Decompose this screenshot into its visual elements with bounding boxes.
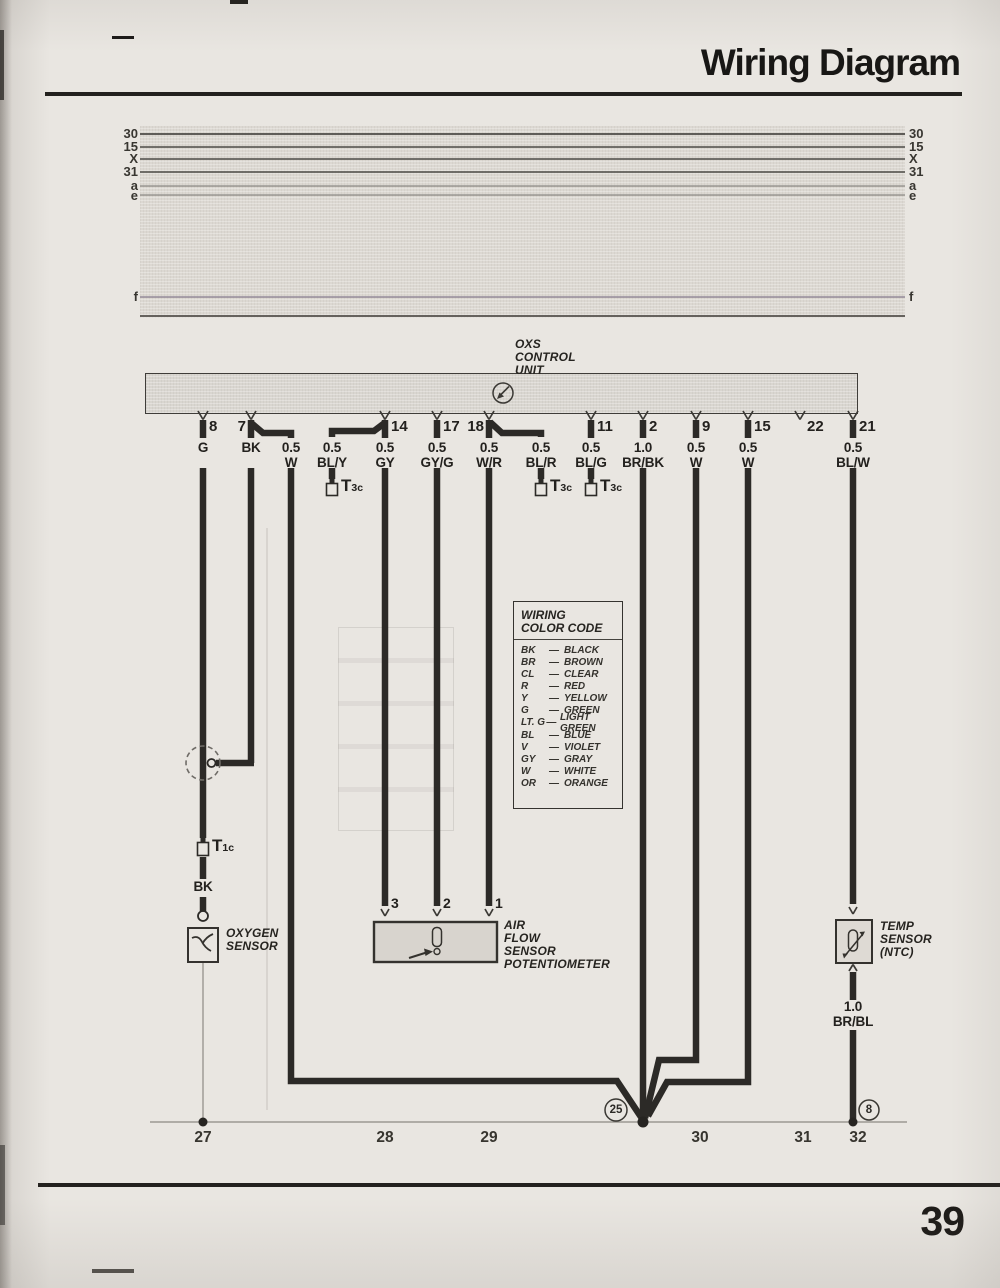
wiring-diagram-canvas xyxy=(0,0,1000,1288)
track-29: 29 xyxy=(474,1129,504,1147)
color-code-row: LT. G—LIGHT GREEN xyxy=(514,717,622,729)
terminal-number-18: 18 xyxy=(464,418,484,435)
wire-label-bl-w: 0.5BL/W xyxy=(821,440,885,470)
air-flow-sensor-symbol xyxy=(374,922,497,962)
temp-sensor-symbol xyxy=(836,920,872,963)
terminal-number-8: 8 xyxy=(209,418,217,435)
header-rule xyxy=(45,92,962,96)
terminal-number-15: 15 xyxy=(754,418,771,435)
terminal-number-11: 11 xyxy=(597,418,613,435)
wire-w-mid xyxy=(645,420,696,1118)
control-unit-label: OXS CONTROL UNIT xyxy=(515,338,576,377)
wiring-color-code-box: WIRING COLOR CODE BK—BLACK BR—BROWN CL—C… xyxy=(513,601,623,809)
color-code-row: V—VIOLET xyxy=(514,741,622,753)
track-30: 30 xyxy=(685,1129,715,1147)
color-code-row: GY—GRAY xyxy=(514,753,622,765)
connector-t3c-2: T3c xyxy=(550,476,572,496)
track-32: 32 xyxy=(843,1129,873,1147)
color-code-row: BK—BLACK xyxy=(514,644,622,656)
wire-label-br-bl: 1.0 BR/BL xyxy=(821,999,885,1029)
bus-label-f-left: f xyxy=(112,289,138,304)
color-code-title: WIRING COLOR CODE xyxy=(514,602,622,634)
wire-label-w3: 0.5W xyxy=(716,440,780,470)
color-code-row: CL—CLEAR xyxy=(514,668,622,680)
color-code-separator xyxy=(514,639,622,640)
bus-label-31-right: 31 xyxy=(909,164,935,179)
terminal-number-2: 2 xyxy=(649,418,657,435)
terminal-number-9: 9 xyxy=(702,418,710,435)
afs-terminal-3: 3 xyxy=(391,895,399,911)
connector-t1c: T1c xyxy=(212,836,234,856)
connector-eyelet xyxy=(208,759,216,767)
color-code-row: Y—YELLOW xyxy=(514,693,622,705)
connector-t3c-3: T3c xyxy=(600,476,622,496)
bus-label-e-right: e xyxy=(909,188,935,203)
footer-rule xyxy=(38,1183,1000,1187)
air-flow-sensor-label: AIR FLOW SENSOR POTENTIOMETER xyxy=(504,919,610,971)
color-code-row: BR—BROWN xyxy=(514,656,622,668)
color-code-row: OR—ORANGE xyxy=(514,778,622,790)
page-title: Wiring Diagram xyxy=(701,42,960,84)
temp-sensor-label: TEMP SENSOR (NTC) xyxy=(880,920,932,959)
shield-wire-label-bk: BK xyxy=(183,879,223,894)
ground-ref-25: 25 xyxy=(605,1104,627,1116)
oxygen-wire-end-eyelet xyxy=(198,911,208,921)
oxygen-sensor-label: OXYGEN SENSOR xyxy=(226,927,279,953)
control-unit-pointer-icon xyxy=(493,383,513,403)
track-28: 28 xyxy=(370,1129,400,1147)
color-code-row: R—RED xyxy=(514,680,622,692)
bus-label-f-right: f xyxy=(909,289,935,304)
terminal-number-22: 22 xyxy=(807,418,824,435)
manual-page: Wiring Diagram 30 15 X 31 a e f 30 15 X … xyxy=(0,0,1000,1288)
terminal-number-21: 21 xyxy=(859,418,876,435)
track-31: 31 xyxy=(788,1129,818,1147)
page-number: 39 xyxy=(920,1198,964,1245)
terminal-number-17: 17 xyxy=(443,418,460,435)
terminal-number-7: 7 xyxy=(226,418,246,435)
bus-lines xyxy=(140,134,905,316)
color-code-row: W—WHITE xyxy=(514,765,622,777)
terminal-number-14: 14 xyxy=(391,418,408,435)
bus-label-31-left: 31 xyxy=(112,164,138,179)
wire-bk-shield xyxy=(216,420,254,763)
track-27: 27 xyxy=(188,1129,218,1147)
oxygen-sensor-symbol xyxy=(188,928,218,962)
afs-terminal-1: 1 xyxy=(495,895,503,911)
bus-label-e-left: e xyxy=(112,188,138,203)
connector-t3c-1: T3c xyxy=(341,476,363,496)
afs-terminal-2: 2 xyxy=(443,895,451,911)
current-track xyxy=(150,962,907,1128)
ground-ref-8: 8 xyxy=(859,1104,879,1116)
